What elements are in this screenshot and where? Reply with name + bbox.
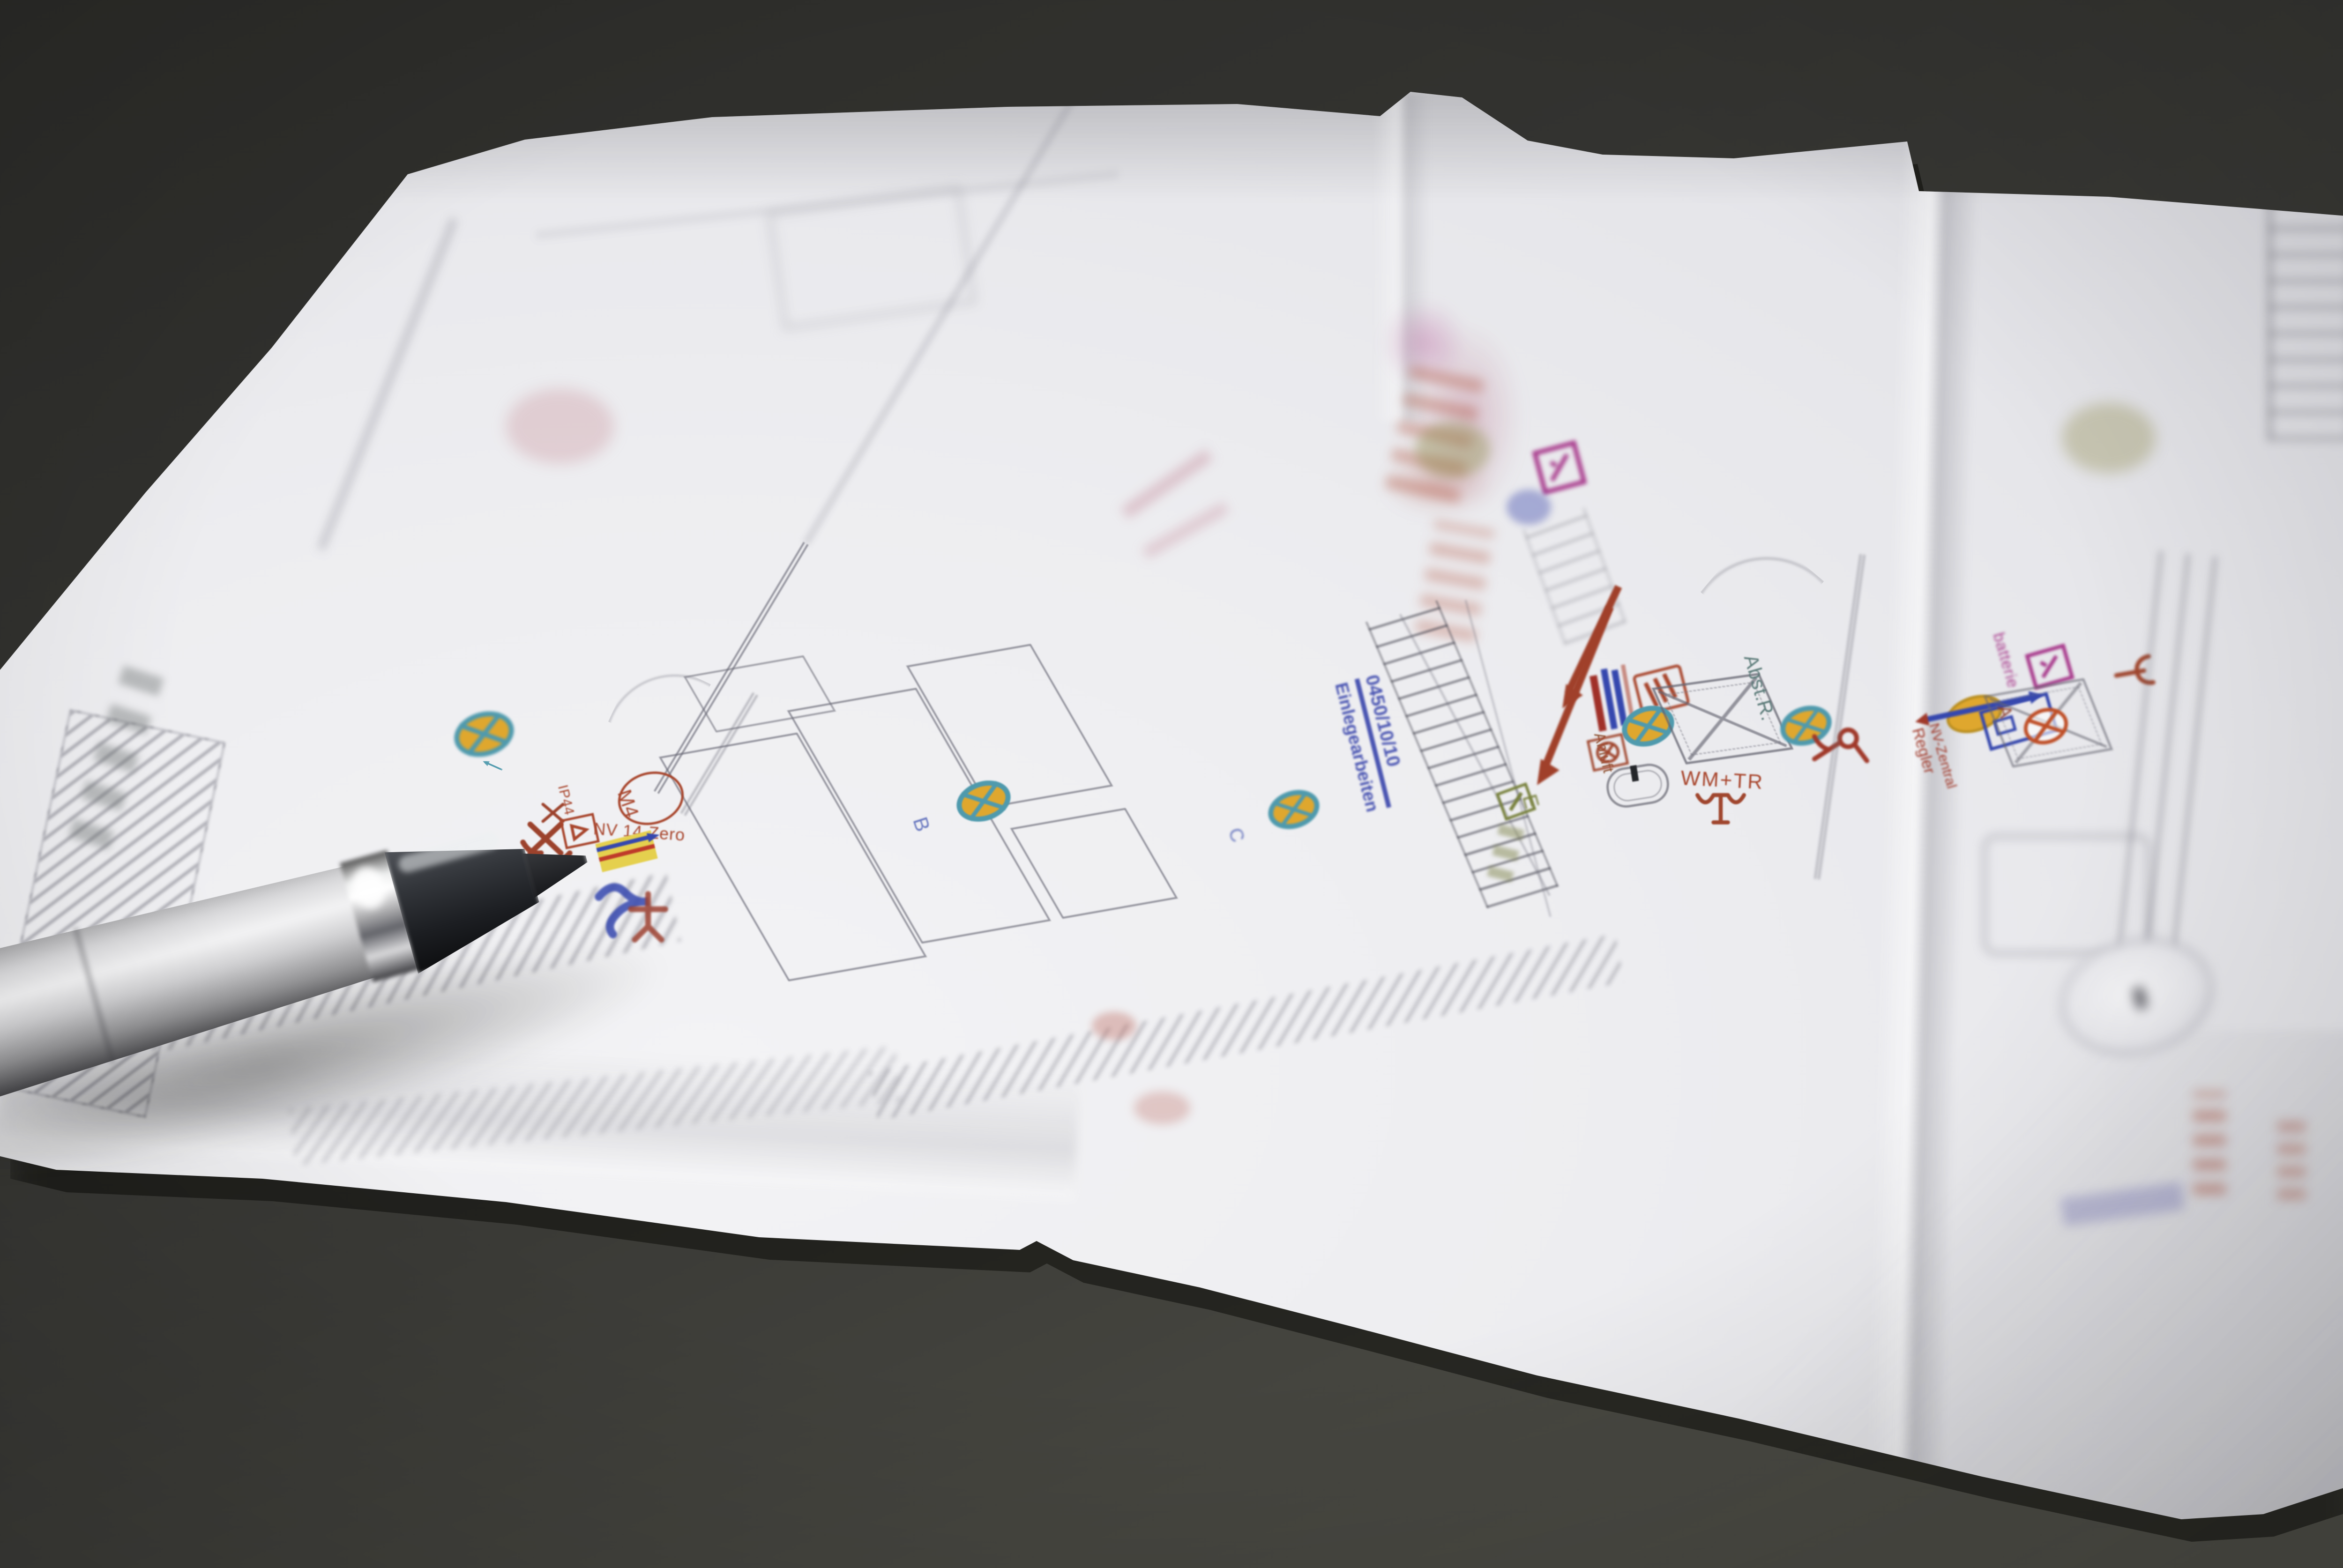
toilet-seat-mark: [2131, 986, 2149, 1011]
blurred-pink-streak: [1121, 449, 1212, 518]
exhaust-fan-box-icon: [1587, 733, 1629, 772]
sofa-furniture-group: [607, 598, 1235, 1003]
ceiling-light-c-icon: [1263, 784, 1324, 836]
magenta-symbol-box: [1532, 440, 1587, 495]
light-cross-bar: [1279, 791, 1308, 828]
label-m4: M4: [613, 787, 643, 821]
ceiling-light-kitchen-icon: [449, 705, 520, 764]
blurred-pink-mark-lower-2: [1134, 1092, 1190, 1124]
light-switch-arrow-icon: [482, 758, 504, 773]
label-batterie: batterie: [1989, 631, 2022, 690]
blurred-blue-mark: [1507, 490, 1551, 525]
washbasin-counter-blurred: [1982, 834, 2151, 956]
macro-photo-floorplan-scene: B C IP44 M4 NV 14-Zero: [0, 0, 2343, 1568]
blurred-olive-mark-2: [2062, 403, 2156, 473]
blurred-pink-mark: [506, 389, 614, 464]
magenta-glyph-icon: [1537, 446, 1581, 489]
blurred-red-annotation-right: [2193, 1092, 2226, 1195]
wall-line-left: [318, 218, 457, 550]
light-cross-bar: [2033, 709, 2059, 743]
blurred-olive-mark: [1415, 422, 1490, 478]
blurred-pink-mark-lower: [1092, 1012, 1136, 1040]
blurred-pink-streak-2: [1142, 502, 1229, 559]
light-cross-bar: [1633, 707, 1663, 745]
washer-dryer-symbol-icon: [1693, 786, 1749, 833]
blurred-red-annotation-right-2: [2277, 1115, 2306, 1199]
label-light-c: C: [1224, 825, 1248, 845]
light-cross-bar: [968, 781, 999, 821]
light-cross-bar: [466, 712, 502, 757]
blurred-grid-right-edge: [2268, 197, 2343, 440]
